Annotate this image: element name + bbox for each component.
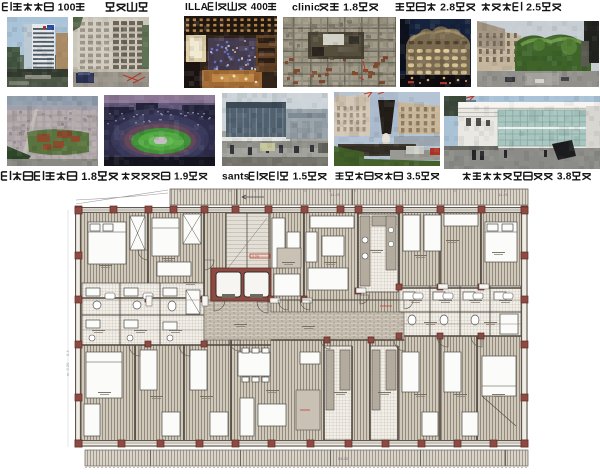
svg-text:3.8: 3.8 — [557, 172, 572, 183]
svg-text:m 9.30 5.4: m 9.30 5.4 — [65, 350, 70, 376]
svg-text:1.5: 1.5 — [293, 172, 308, 183]
svg-text:1.9: 1.9 — [174, 172, 189, 183]
svg-text:2.25: 2.25 — [252, 255, 259, 259]
svg-text:100: 100 — [58, 1, 76, 13]
svg-text:54.20: 54.20 — [338, 456, 349, 461]
svg-text:2.8: 2.8 — [440, 1, 455, 13]
svg-text:sants: sants — [222, 172, 250, 183]
svg-text:3.5: 3.5 — [407, 171, 422, 182]
svg-text:ILLA: ILLA — [185, 2, 208, 13]
svg-text:2.5: 2.5 — [526, 1, 541, 13]
svg-text:clinic: clinic — [292, 1, 320, 13]
svg-text:1.8: 1.8 — [81, 171, 97, 183]
svg-text:400: 400 — [251, 2, 269, 13]
svg-text:14.20: 14.20 — [330, 192, 341, 197]
svg-text:1.8: 1.8 — [343, 1, 358, 13]
svg-text:14.20: 14.20 — [498, 192, 509, 197]
